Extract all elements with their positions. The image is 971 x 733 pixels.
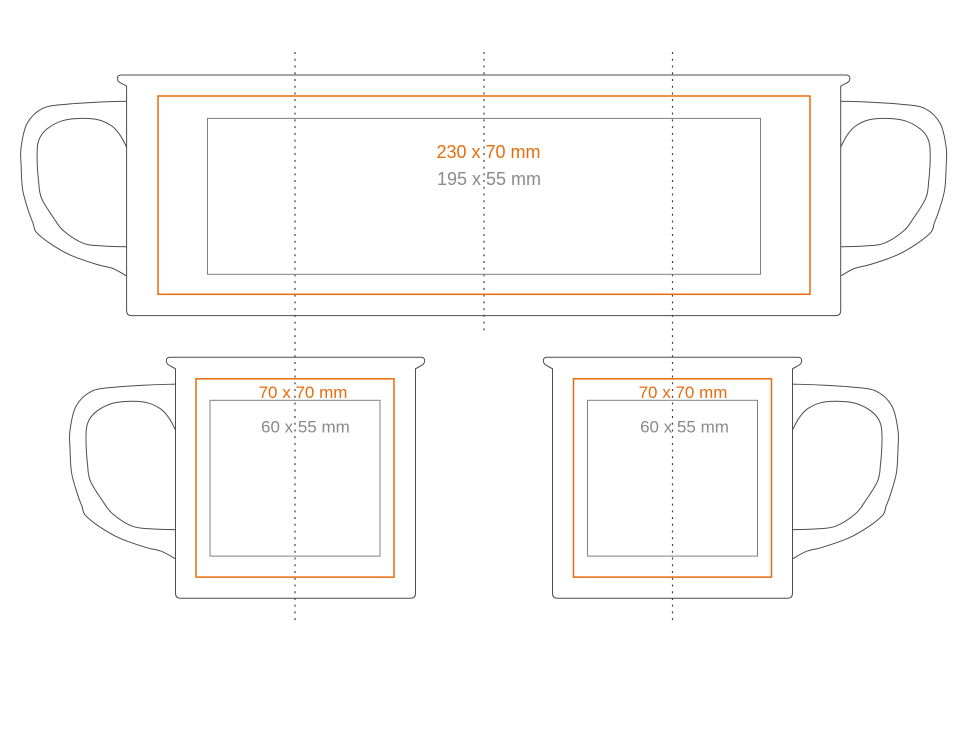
svg-text:230 x 70 mm: 230 x 70 mm [436,142,540,162]
svg-text:60 x 55 mm: 60 x 55 mm [261,417,350,436]
svg-text:70 x 70 mm: 70 x 70 mm [639,383,728,402]
svg-text:70 x 70 mm: 70 x 70 mm [259,383,348,402]
svg-text:60 x 55 mm: 60 x 55 mm [640,417,729,436]
svg-text:195 x 55 mm: 195 x 55 mm [437,169,541,189]
